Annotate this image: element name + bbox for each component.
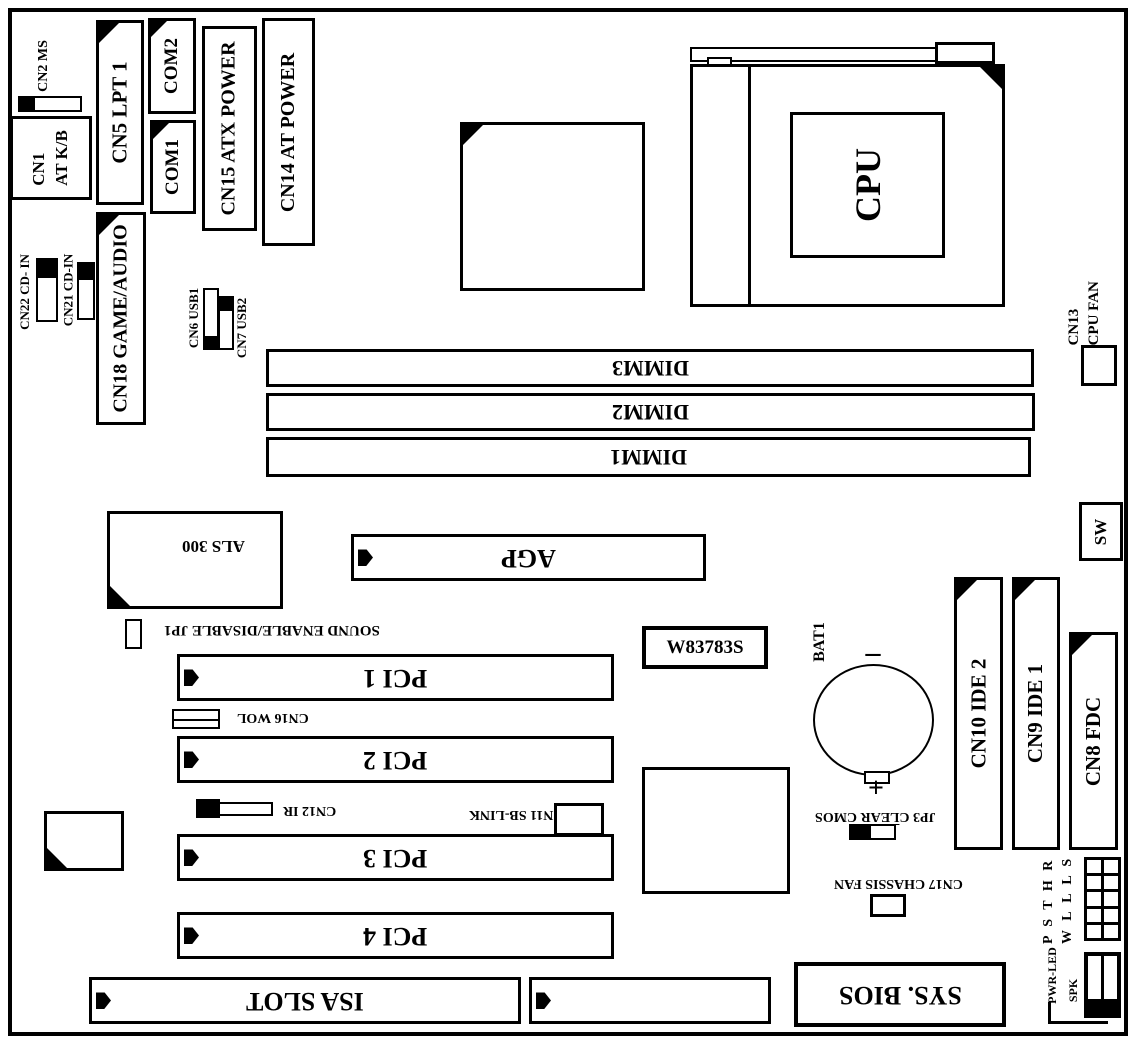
dimm1-label: DIMM1 xyxy=(610,444,687,470)
pwr-led-pointer-line-h xyxy=(1048,1021,1108,1024)
pci3-label: PCI 3 xyxy=(363,843,427,873)
cn1-label: CN1 xyxy=(28,130,51,186)
pin1-fold xyxy=(1072,635,1092,655)
sw-label: SW xyxy=(1091,518,1111,544)
sw-dip-switch: SW xyxy=(1079,502,1123,561)
cn17-chassis-fan-connector xyxy=(870,894,906,917)
jp1-jumper xyxy=(125,619,142,649)
pin1-fold xyxy=(957,580,977,600)
cn5-lpt1-connector: CN5 LPT 1 xyxy=(96,20,144,205)
slot-key xyxy=(184,751,199,768)
pin1-fold xyxy=(99,23,119,43)
bat1-battery xyxy=(813,664,934,776)
cn15-label: CN15 ATX POWER xyxy=(218,41,241,215)
cn1-at-kb-connector: CN1 AT K/B xyxy=(10,116,92,200)
cn13-cpu-fan-label: CN13 CPU FAN xyxy=(1044,283,1124,343)
isa-slot: ISA SLOT xyxy=(89,977,521,1024)
cn12-ir-connector xyxy=(218,802,273,816)
jp3-jumper xyxy=(849,824,896,840)
cn17-chassis-fan-label: CN17 CHASSIS FAN xyxy=(818,873,978,893)
cn10-ide2-connector: CN10 IDE 2 xyxy=(954,577,1003,850)
com1-connector: COM1 xyxy=(150,120,196,214)
isa-slot-segment2 xyxy=(529,977,771,1024)
com2-label: COM2 xyxy=(161,38,183,94)
jumper-cap xyxy=(851,826,871,838)
pin1-mark xyxy=(205,336,217,348)
pin1-fold xyxy=(1015,580,1035,600)
cn11-sblink-label: CN11 SB-LINK xyxy=(480,804,552,824)
cn2-ms-label: CN2 MS xyxy=(24,34,64,98)
cn11-sblink-connector xyxy=(554,803,604,836)
pci2-slot: PCI 2 xyxy=(177,736,614,783)
cn14-at-power-connector: CN14 AT POWER xyxy=(262,18,315,246)
pin1-fold xyxy=(110,586,130,606)
bat1-label: BAT1 xyxy=(800,614,840,670)
cn2-ms-connector xyxy=(18,96,82,112)
dimm3-label: DIMM3 xyxy=(612,355,689,381)
pci1-label: PCI 1 xyxy=(363,663,427,693)
slot-key xyxy=(536,992,551,1009)
motherboard-diagram: CN2 MS CN1 AT K/B CN5 LPT 1 COM2 COM1 CN… xyxy=(0,0,1136,1044)
cn16-wol-connector xyxy=(172,709,220,729)
socket-lever-handle xyxy=(935,42,995,64)
pci4-label: PCI 4 xyxy=(363,921,427,951)
pci1-slot: PCI 1 xyxy=(177,654,614,701)
battery-plus-sign: + xyxy=(861,776,891,802)
dimm2-slot: DIMM2 xyxy=(266,393,1035,431)
cn12-ir-label: CN12 IR xyxy=(278,800,342,820)
speaker-connector xyxy=(1084,952,1121,1018)
fdc-label: CN8 FDC xyxy=(1081,696,1106,785)
pin1-fold xyxy=(980,67,1002,89)
cn12-ir-pin1-mark xyxy=(196,799,220,818)
cn16-wol-label: CN16 WOL xyxy=(225,706,320,728)
als300-label: ALS 300 xyxy=(182,536,245,556)
cn5-lpt1-label: CN5 LPT 1 xyxy=(108,61,133,163)
sys-bios-chip: SYS. BIOS xyxy=(794,962,1006,1027)
sys-bios-label: SYS. BIOS xyxy=(839,980,962,1010)
pci3-slot: PCI 3 xyxy=(177,834,614,881)
ide1-label: CN9 IDE 1 xyxy=(1024,664,1049,763)
cn1-type-label: AT K/B xyxy=(51,130,74,186)
pin1-mark xyxy=(20,98,35,110)
w83783s-chip: W83783S xyxy=(642,626,768,669)
cn6-usb1-connector xyxy=(203,288,219,350)
cn18-game-audio-connector: CN18 GAME/AUDIO xyxy=(96,212,146,425)
cn13-cpu-fan-connector xyxy=(1081,345,1117,386)
southbridge-chip xyxy=(642,767,790,894)
slot-key xyxy=(184,849,199,866)
battery-minus-sign: – xyxy=(858,642,888,664)
cn18-label: CN18 GAME/AUDIO xyxy=(110,224,133,412)
slot-key xyxy=(358,549,373,566)
als300-chip: ALS 300 xyxy=(107,511,283,609)
pci2-label: PCI 2 xyxy=(363,745,427,775)
cpu-label: CPU xyxy=(847,148,889,222)
slot-key xyxy=(184,927,199,944)
cpu-die: CPU xyxy=(790,112,945,258)
pin1-fold xyxy=(463,125,483,145)
cn8-fdc-connector: CN8 FDC xyxy=(1069,632,1118,850)
front-panel-header xyxy=(1084,857,1121,941)
cn15-atx-power-connector: CN15 ATX POWER xyxy=(202,26,257,231)
slot-key xyxy=(184,669,199,686)
pin1-fold xyxy=(153,123,169,139)
cn7-usb2-label: CN7 USB2 xyxy=(222,286,262,370)
ide2-label: CN10 IDE 2 xyxy=(966,659,991,769)
agp-label: AGP xyxy=(501,543,556,573)
com1-label: COM1 xyxy=(162,139,184,195)
jp1-sound-label: SOUND ENABLE/DISABLE JP1 xyxy=(146,615,398,643)
pin1-fold xyxy=(151,21,167,37)
pin1-mark xyxy=(79,264,93,280)
slot-key xyxy=(96,992,111,1009)
isa-slot-label: ISA SLOT xyxy=(246,986,364,1016)
dimm2-label: DIMM2 xyxy=(612,399,689,425)
front-panel-letters: P S T H R W L L L S xyxy=(1033,852,1085,948)
pci4-slot: PCI 4 xyxy=(177,912,614,959)
socket-divider-line xyxy=(748,67,751,304)
agp-slot: AGP xyxy=(351,534,706,581)
w83783s-label: W83783S xyxy=(666,637,743,659)
cn9-ide1-connector: CN9 IDE 1 xyxy=(1012,577,1060,850)
pin1-fold xyxy=(47,848,67,868)
io-chip xyxy=(44,811,124,871)
dimm1-slot: DIMM1 xyxy=(266,437,1031,477)
cn14-label: CN14 AT POWER xyxy=(277,52,300,211)
com2-connector: COM2 xyxy=(148,18,196,114)
cn21-cd-in-connector xyxy=(77,262,95,320)
northbridge-chip xyxy=(460,122,645,291)
header-row-line xyxy=(174,711,218,721)
dimm3-slot: DIMM3 xyxy=(266,349,1034,387)
